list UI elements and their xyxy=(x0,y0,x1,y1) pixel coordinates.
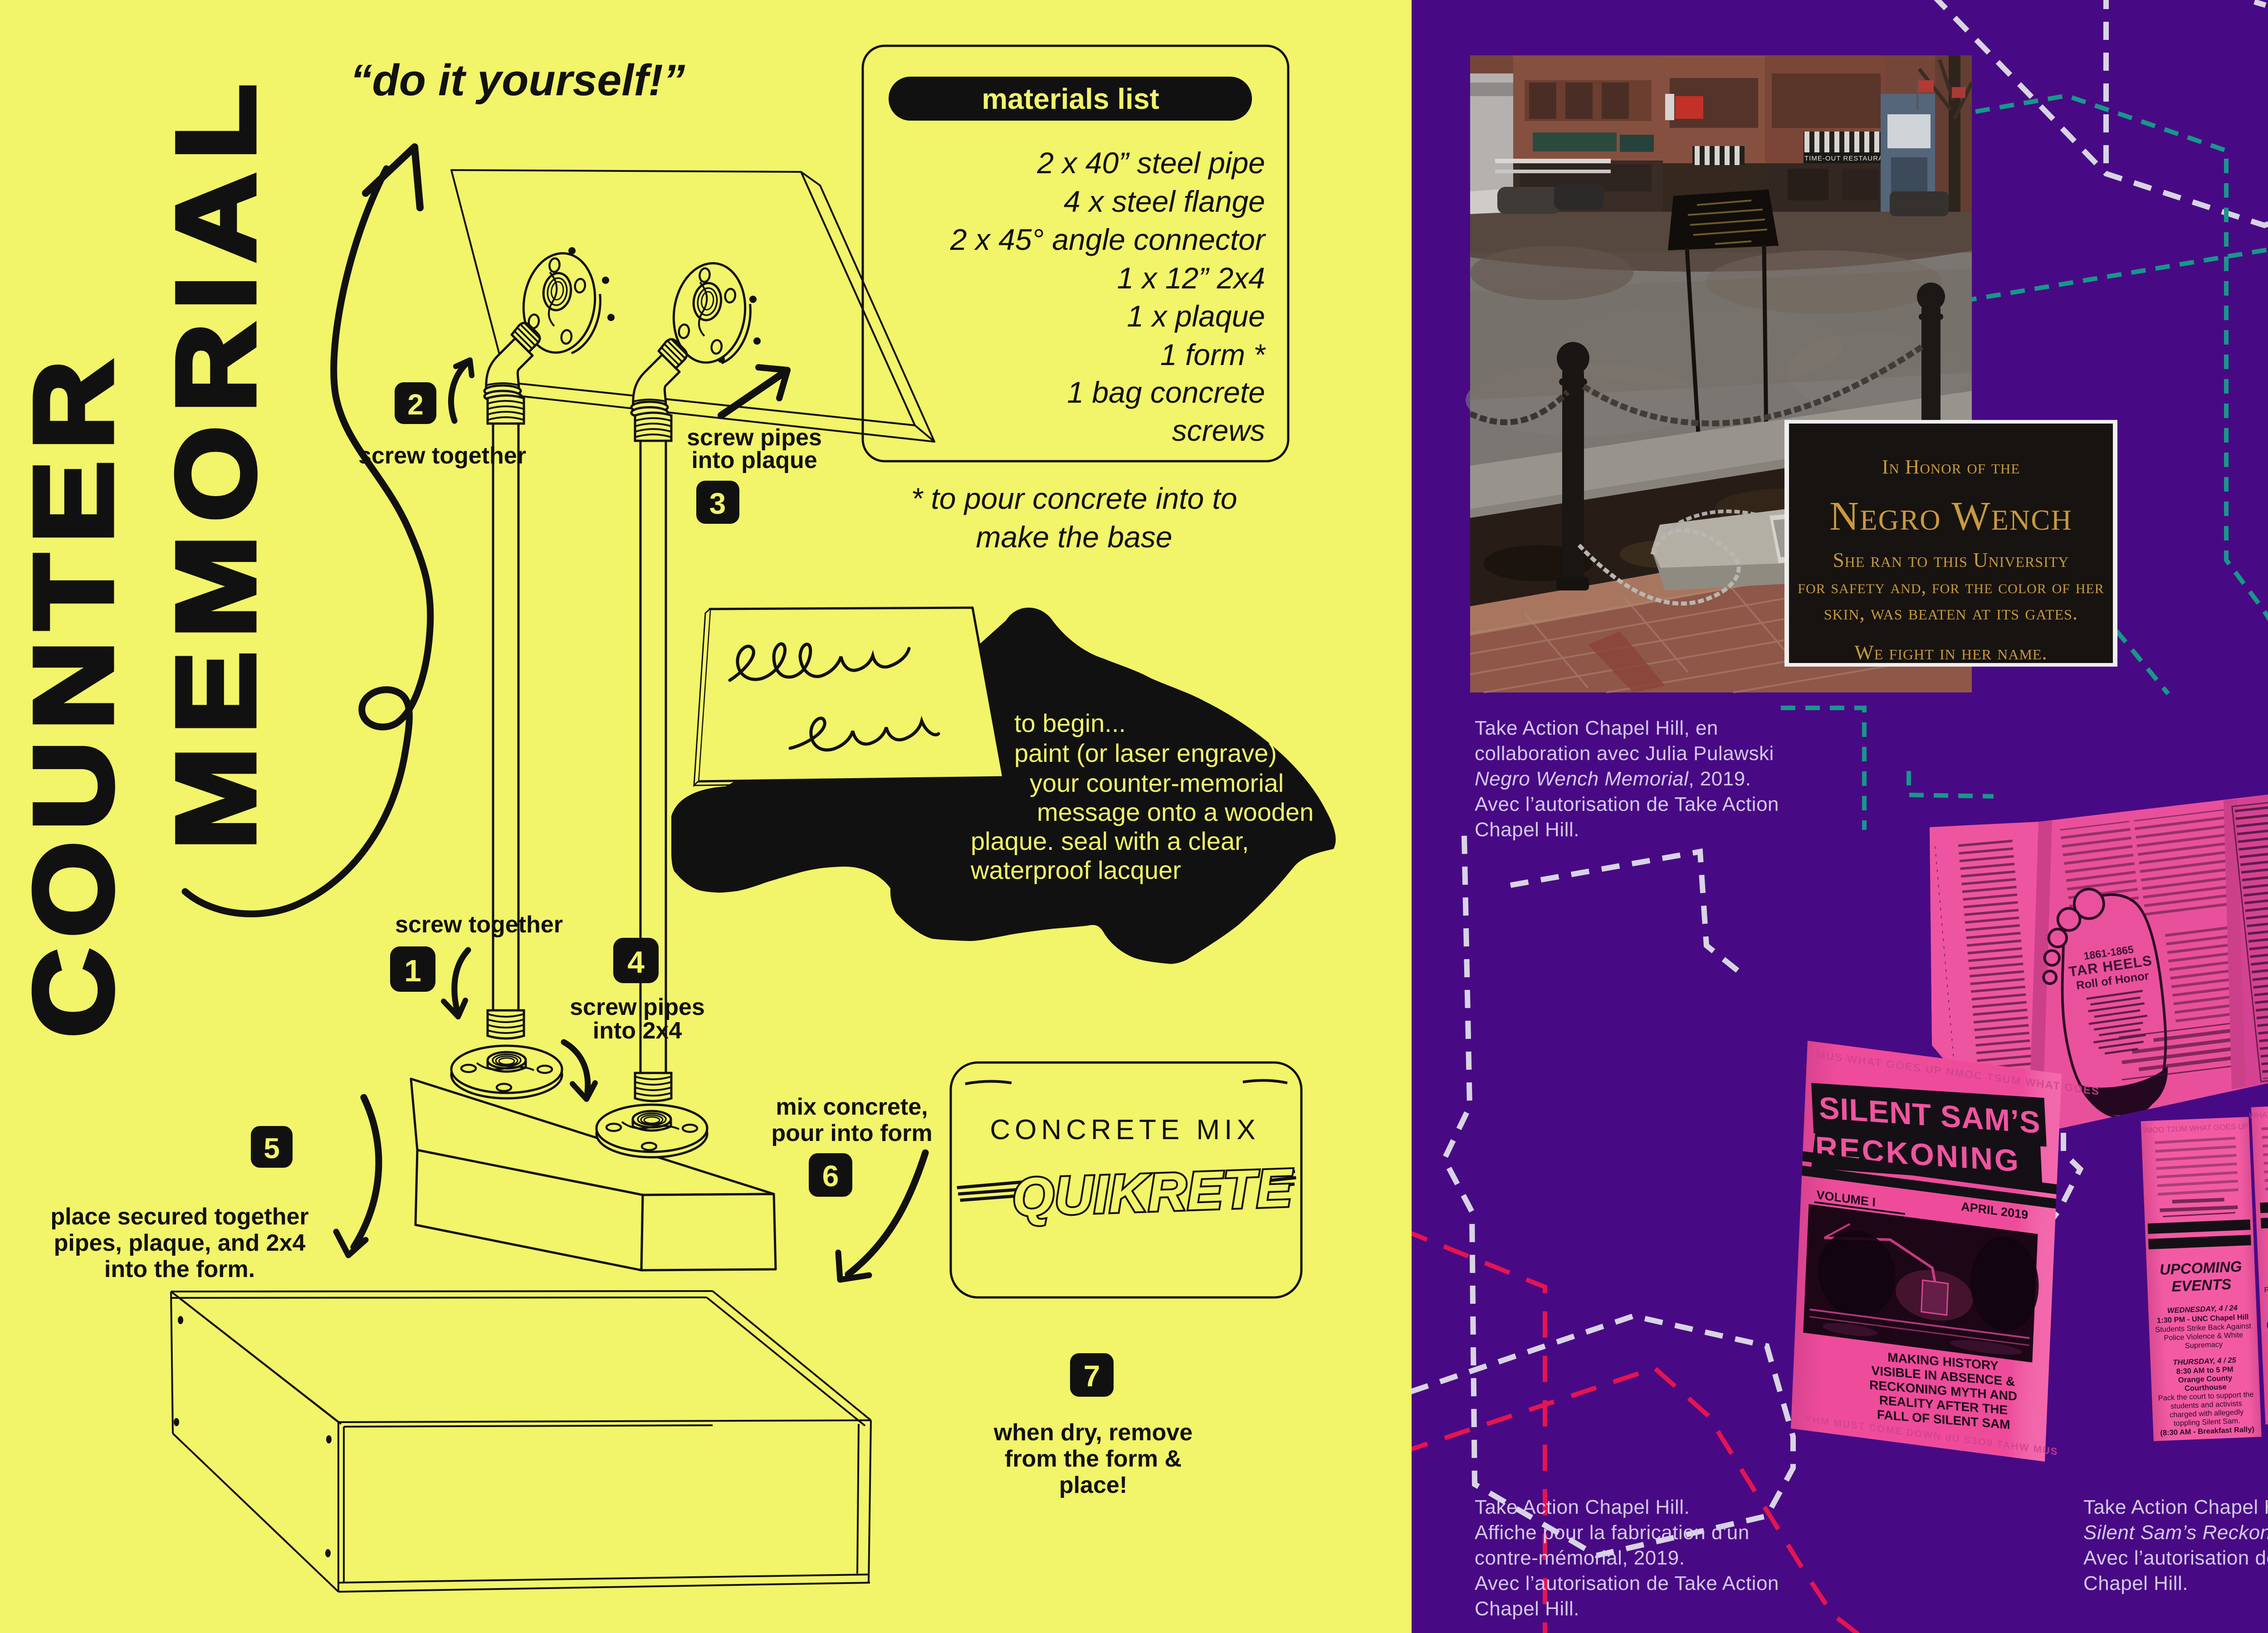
svg-text:2 x 40” steel pipe: 2 x 40” steel pipe xyxy=(1036,146,1265,180)
svg-text:waterproof lacquer: waterproof lacquer xyxy=(970,856,1181,884)
svg-text:pipes, plaque, and 2x4: pipes, plaque, and 2x4 xyxy=(54,1230,306,1256)
svg-text:5: 5 xyxy=(264,1132,280,1165)
svg-text:into 2x4: into 2x4 xyxy=(593,1018,682,1044)
svg-text:1 x 12” 2x4: 1 x 12” 2x4 xyxy=(1117,261,1265,295)
svg-text:from the form &: from the form & xyxy=(1005,1446,1182,1472)
svg-text:materials list: materials list xyxy=(982,83,1159,115)
svg-text:Supremacy: Supremacy xyxy=(2185,1341,2223,1350)
svg-text:message onto a wooden: message onto a wooden xyxy=(1037,798,1314,826)
svg-text:1: 1 xyxy=(404,954,421,988)
svg-text:when dry, remove: when dry, remove xyxy=(993,1419,1193,1446)
svg-text:screw pipes: screw pipes xyxy=(570,994,705,1020)
svg-text:1 bag concrete: 1 bag concrete xyxy=(1067,375,1265,409)
svg-text:CΟNCRETE MIX: CΟNCRETE MIX xyxy=(990,1114,1260,1146)
svg-text:2 x 45° angle connector: 2 x 45° angle connector xyxy=(950,223,1266,256)
svg-text:COUNTER: COUNTER xyxy=(11,360,135,1038)
svg-text:6: 6 xyxy=(822,1159,839,1193)
svg-text:Courthouse: Courthouse xyxy=(2185,1383,2227,1393)
svg-text:UPCOMING: UPCOMING xyxy=(2159,1258,2242,1278)
svg-text:4 x steel flange: 4 x steel flange xyxy=(1064,185,1265,218)
svg-text:mix concrete,: mix concrete, xyxy=(776,1094,928,1120)
svg-text:paint (or laser engrave): paint (or laser engrave) xyxy=(1014,739,1277,767)
svg-text:plaque. seal with a clear,: plaque. seal with a clear, xyxy=(971,827,1249,855)
svg-text:2: 2 xyxy=(407,388,424,421)
svg-text:Negro Wench: Negro Wench xyxy=(1829,494,2072,539)
svg-text:EVENTS: EVENTS xyxy=(2171,1276,2231,1295)
svg-text:skin, was beaten at its gates.: skin, was beaten at its gates. xyxy=(1824,601,2078,624)
svg-text:In Honor of the: In Honor of the xyxy=(1882,456,2020,478)
svg-text:* to pour concrete into to: * to pour concrete into to xyxy=(911,482,1237,515)
svg-text:QUIKRETE: QUIKRETE xyxy=(1011,1158,1294,1228)
svg-text:4: 4 xyxy=(627,945,645,980)
svg-text:3: 3 xyxy=(709,487,726,520)
svg-text:your counter-memorial: your counter-memorial xyxy=(1030,769,1284,797)
svg-text:place!: place! xyxy=(1059,1472,1127,1498)
svg-text:“do it yourself!”: “do it yourself!” xyxy=(350,55,685,105)
svg-text:into plaque: into plaque xyxy=(691,447,817,473)
svg-text:7: 7 xyxy=(1084,1359,1100,1393)
svg-text:pour into form: pour into form xyxy=(771,1120,932,1146)
svg-text:make the base: make the base xyxy=(976,520,1173,554)
svg-text:1 form *: 1 form * xyxy=(1160,338,1266,371)
svg-text:We fight in her name.: We fight in her name. xyxy=(1854,641,2047,664)
svg-text:screw together: screw together xyxy=(395,912,563,938)
svg-text:screw together: screw together xyxy=(358,443,526,469)
svg-text:into the form.: into the form. xyxy=(104,1256,255,1282)
svg-text:screws: screws xyxy=(1172,414,1265,447)
svg-text:TIME-OUT RESTAURANT: TIME-OUT RESTAURANT xyxy=(1804,155,1893,162)
svg-text:place secured together: place secured together xyxy=(50,1204,308,1230)
svg-text:1 x plaque: 1 x plaque xyxy=(1127,299,1265,333)
svg-text:She ran to this University: She ran to this University xyxy=(1833,549,2069,571)
svg-text:to begin...: to begin... xyxy=(1014,709,1126,737)
svg-text:for safety and, for the color: for safety and, for the color of her xyxy=(1798,576,2104,598)
svg-text:MEMORIAL: MEMORIAL xyxy=(154,83,278,850)
